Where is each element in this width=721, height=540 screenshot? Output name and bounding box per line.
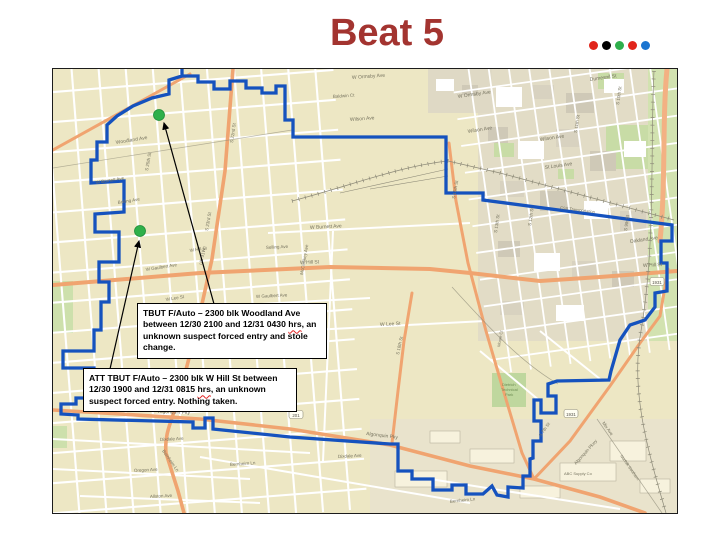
decor-dot — [602, 41, 611, 50]
callout-text: TBUT F/Auto – 2300 blk Woodland Ave betw… — [143, 308, 300, 329]
decor-dots — [589, 41, 650, 50]
map-canvas: W Ormsby AveW Ormsby AveBaldwin CtWilson… — [53, 69, 677, 513]
decor-dot — [628, 41, 637, 50]
misspelled-word: hrs — [197, 384, 210, 394]
street-label: ABC Supply Co — [564, 471, 593, 476]
route-shield: 1931 — [650, 278, 664, 286]
slide-title: Beat 5 — [330, 12, 444, 55]
svg-text:1931: 1931 — [566, 412, 576, 417]
svg-text:201: 201 — [292, 413, 300, 418]
slide: Beat 5 — [0, 0, 721, 540]
callout-hill-incident: ATT TBUT F/Auto – 2300 blk W Hill St bet… — [83, 368, 297, 412]
street-label: W Lee St — [380, 321, 401, 328]
decor-dot — [589, 41, 598, 50]
decor-dot — [641, 41, 650, 50]
callout-woodland-incident: TBUT F/Auto – 2300 blk Woodland Ave betw… — [137, 303, 327, 359]
incident-dot-hill — [135, 226, 146, 237]
svg-text:1931: 1931 — [652, 280, 662, 285]
street-label: Park — [505, 392, 513, 397]
beat-map: W Ormsby AveW Ormsby AveBaldwin CtWilson… — [52, 68, 678, 514]
incident-dot-woodland — [154, 110, 165, 121]
decor-dot — [615, 41, 624, 50]
misspelled-word: hrs — [288, 319, 301, 329]
route-shield: 1931 — [564, 410, 578, 418]
street-label: W Hill St — [643, 262, 663, 269]
